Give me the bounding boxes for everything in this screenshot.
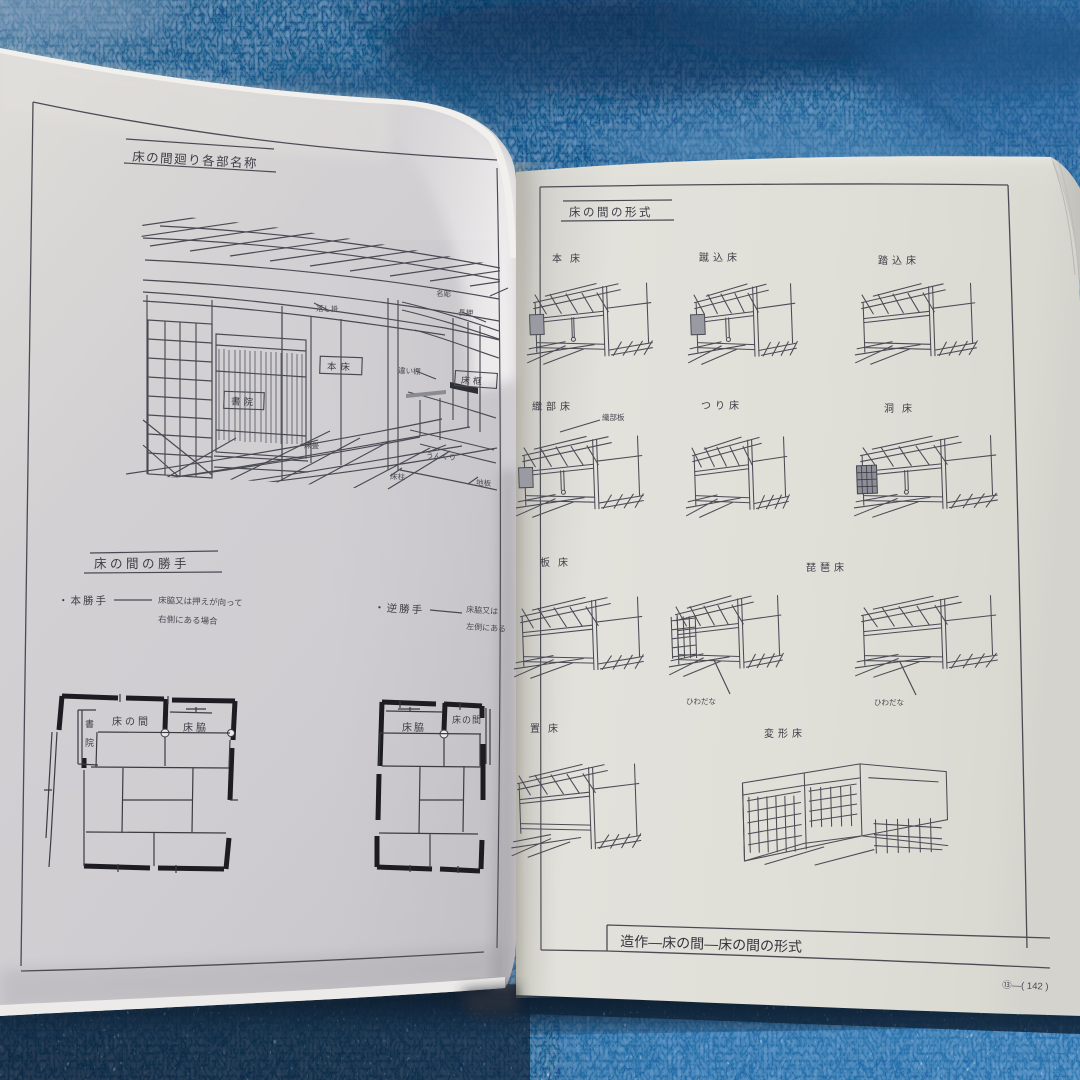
svg-text:書院: 書院 <box>231 396 256 409</box>
svg-text:右側にある場合: 右側にある場合 <box>158 614 218 626</box>
svg-text:・逆勝手: ・逆勝手 <box>374 601 425 617</box>
svg-text:床柱: 床柱 <box>390 471 406 482</box>
svg-text:名彫: 名彫 <box>436 288 452 299</box>
svg-text:ひわだな: ひわだな <box>874 698 904 707</box>
svg-text:変形床: 変形床 <box>764 727 806 740</box>
svg-text:院: 院 <box>85 737 94 748</box>
svg-text:置床: 置床 <box>530 722 566 735</box>
svg-text:床の間: 床の間 <box>452 714 482 725</box>
svg-text:書: 書 <box>85 718 94 729</box>
svg-text:織部床: 織部床 <box>532 400 574 413</box>
svg-text:洞床: 洞床 <box>884 402 920 415</box>
svg-text:床框: 床框 <box>461 374 486 387</box>
svg-text:・本勝手: ・本勝手 <box>58 594 108 607</box>
svg-text:蹴込床: 蹴込床 <box>699 251 741 264</box>
svg-text:⑬―( 142 ): ⑬―( 142 ) <box>1002 980 1049 993</box>
svg-text:板床: 板床 <box>540 556 576 569</box>
svg-text:琵琶床: 琵琶床 <box>806 561 848 574</box>
svg-text:床畳: 床畳 <box>304 440 320 451</box>
svg-text:落し掛: 落し掛 <box>316 303 339 314</box>
svg-text:床の間の形式: 床の間の形式 <box>569 205 653 219</box>
svg-text:長押: 長押 <box>458 307 474 318</box>
svg-text:織部板: 織部板 <box>602 412 625 422</box>
svg-text:床の間: 床の間 <box>112 715 151 728</box>
svg-text:床の間の勝手: 床の間の勝手 <box>94 556 190 571</box>
svg-text:地板: 地板 <box>476 477 492 488</box>
svg-text:踏込床: 踏込床 <box>878 254 920 267</box>
svg-text:本床: 本床 <box>327 361 354 374</box>
svg-text:本床: 本床 <box>552 252 588 265</box>
svg-text:ひわだな: ひわだな <box>686 697 716 706</box>
svg-text:違い棚: 違い棚 <box>398 365 421 376</box>
svg-text:床脇: 床脇 <box>183 721 209 734</box>
svg-text:床脇: 床脇 <box>402 721 426 734</box>
svg-text:つり床: つり床 <box>701 399 743 412</box>
